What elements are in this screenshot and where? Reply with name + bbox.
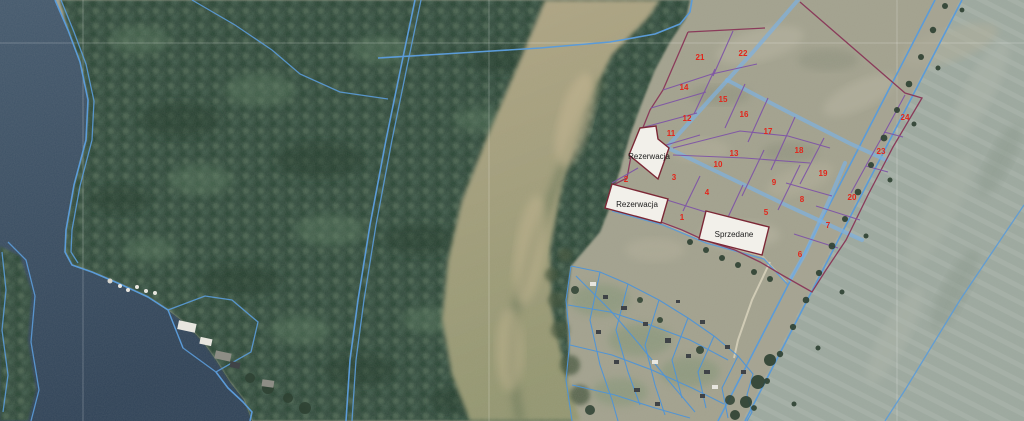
parcel-number[interactable]: 15 [719,95,728,104]
parcel-number[interactable]: 5 [764,208,769,217]
aerial-map: Rezerwacja Rezerwacja Sprzedane 1 2 3 4 … [0,0,1024,421]
map-viewport[interactable]: Rezerwacja Rezerwacja Sprzedane 1 2 3 4 … [0,0,1024,421]
parcel-number[interactable]: 2 [624,175,629,184]
status-label-text: Rezerwacja [628,152,670,161]
parcel-number[interactable]: 21 [696,53,705,62]
parcel-number[interactable]: 18 [795,146,804,155]
status-label-text: Sprzedane [715,230,754,239]
parcel-number[interactable]: 8 [800,195,805,204]
parcel-number[interactable]: 13 [730,149,739,158]
parcel-number[interactable]: 7 [826,221,831,230]
parcel-number[interactable]: 4 [705,188,710,197]
parcel-number[interactable]: 20 [848,193,857,202]
parcel-number[interactable]: 9 [772,178,777,187]
status-label-text: Rezerwacja [616,200,658,209]
parcel-number[interactable]: 11 [667,129,676,138]
parcel-number[interactable]: 10 [714,160,723,169]
parcel-number[interactable]: 6 [798,250,803,259]
parcel-number[interactable]: 12 [683,114,692,123]
parcel-number[interactable]: 24 [901,113,910,122]
parcel-number[interactable]: 14 [680,83,689,92]
parcel-number[interactable]: 17 [764,127,773,136]
parcel-number[interactable]: 16 [740,110,749,119]
parcel-number[interactable]: 1 [680,213,685,222]
parcel-number[interactable]: 3 [672,173,677,182]
parcel-number[interactable]: 22 [739,49,748,58]
parcel-number[interactable]: 23 [877,147,886,156]
parcel-number[interactable]: 19 [819,169,828,178]
